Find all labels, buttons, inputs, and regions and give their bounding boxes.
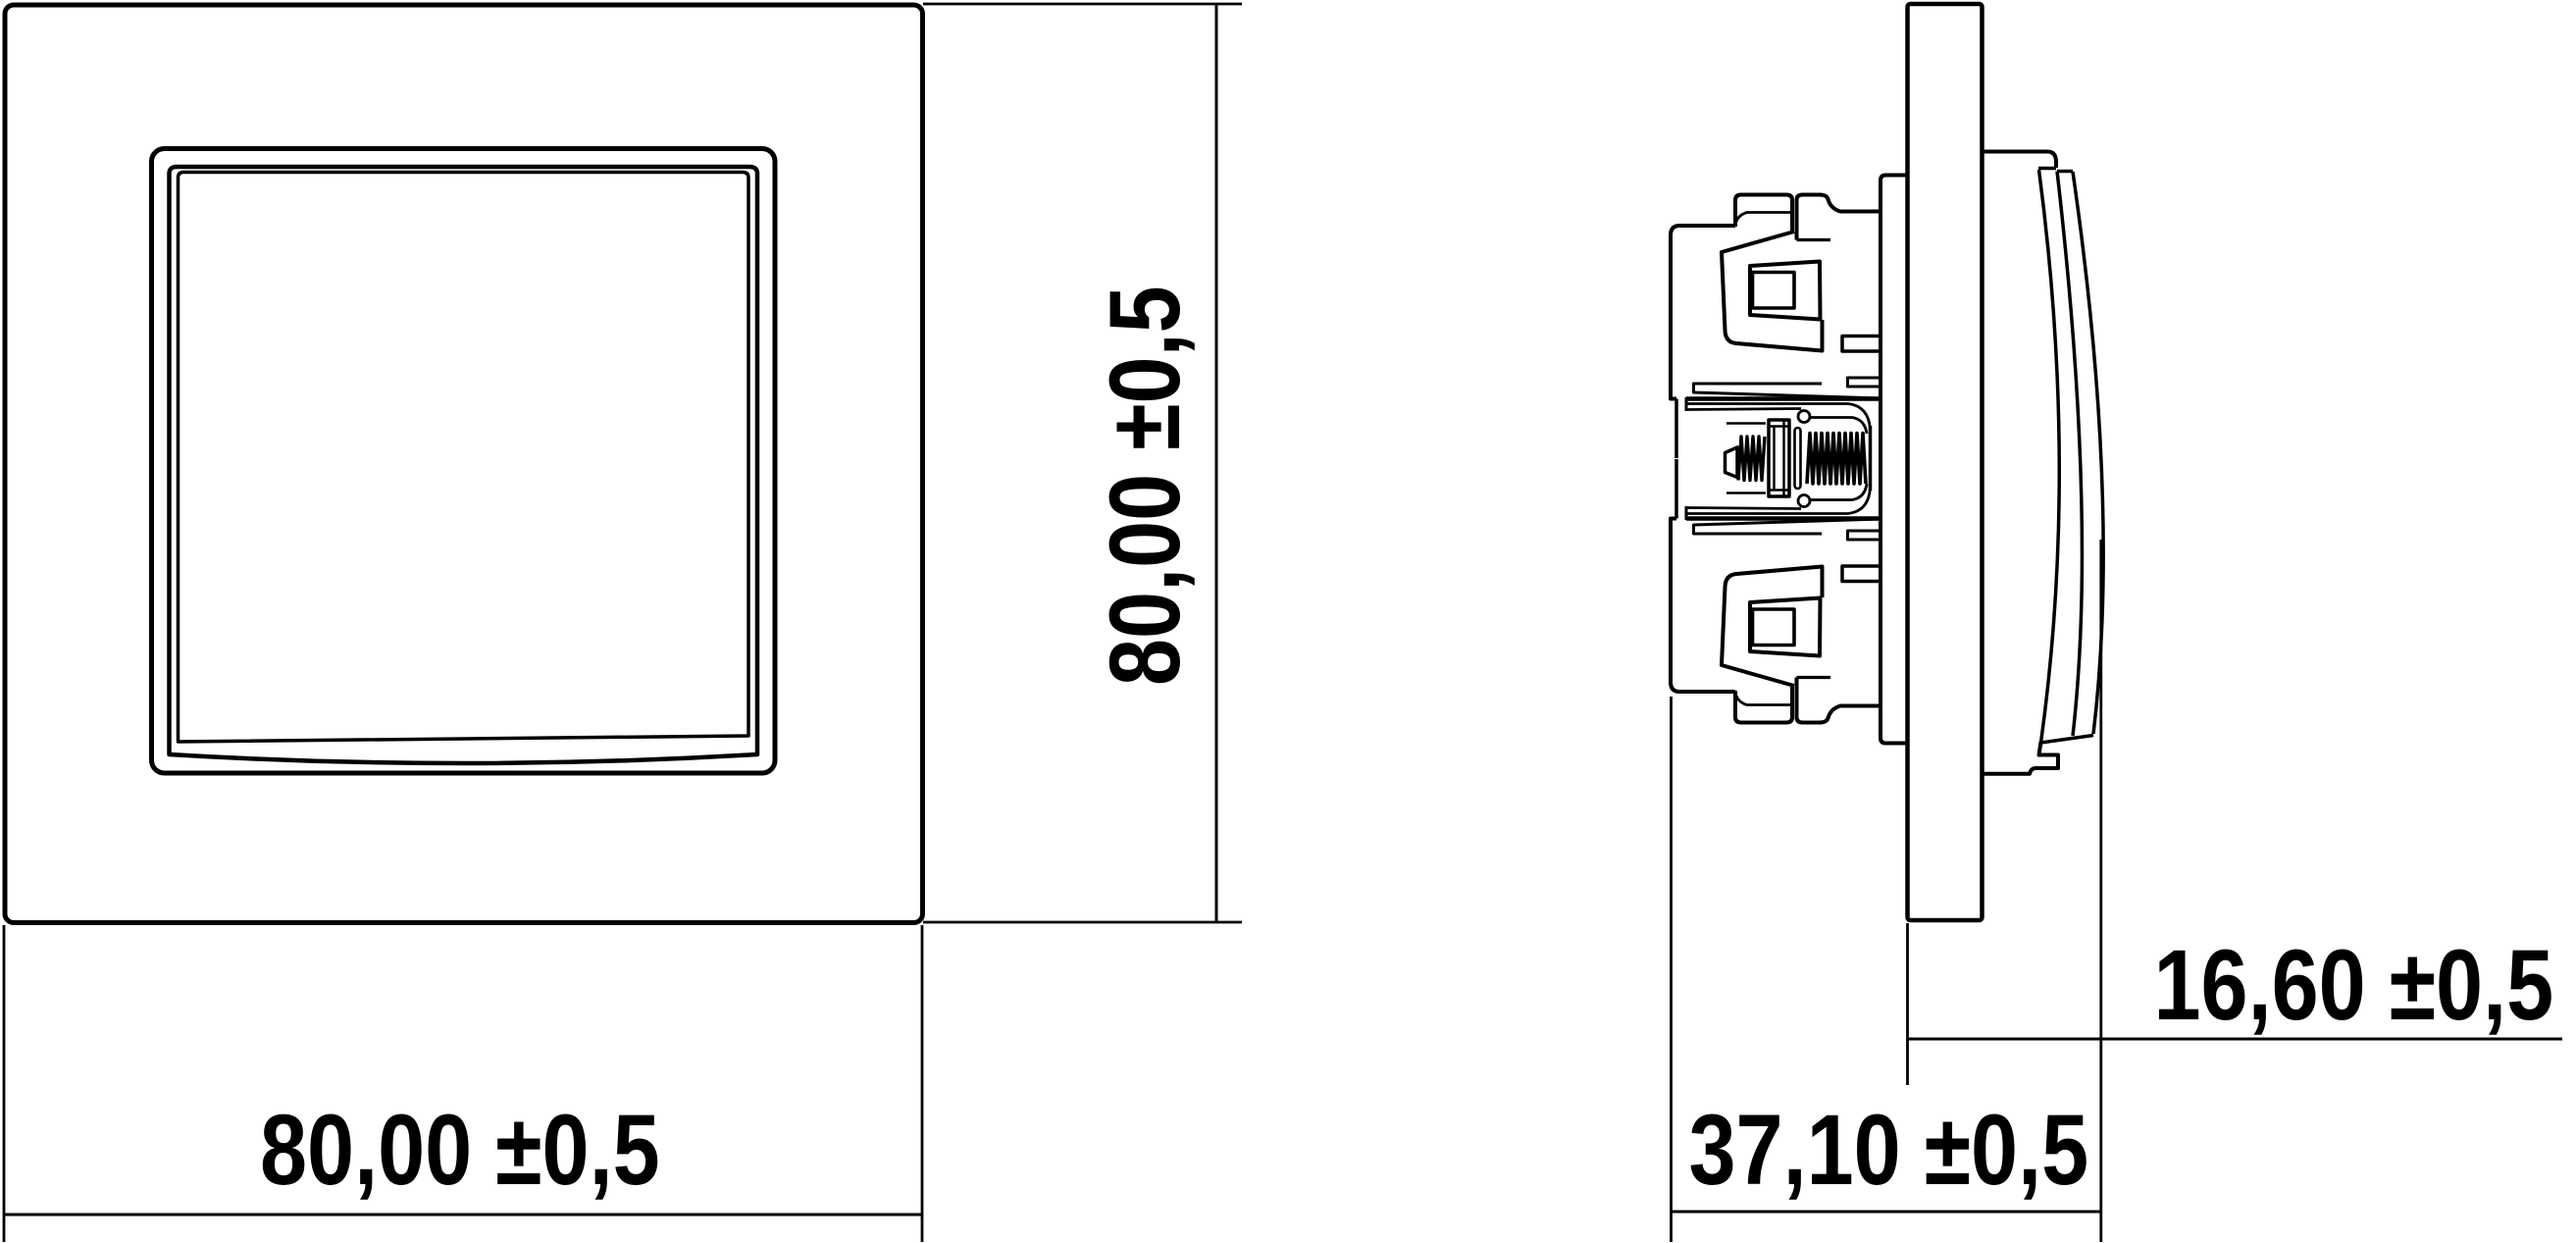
svg-text:80,00 ±0,5: 80,00 ±0,5 [260, 1094, 660, 1206]
svg-text:16,60 ±0,5: 16,60 ±0,5 [2154, 929, 2554, 1041]
svg-text:80,00 ±0,5: 80,00 ±0,5 [1089, 285, 1201, 686]
svg-text:37,10 ±0,5: 37,10 ±0,5 [1689, 1094, 2089, 1206]
